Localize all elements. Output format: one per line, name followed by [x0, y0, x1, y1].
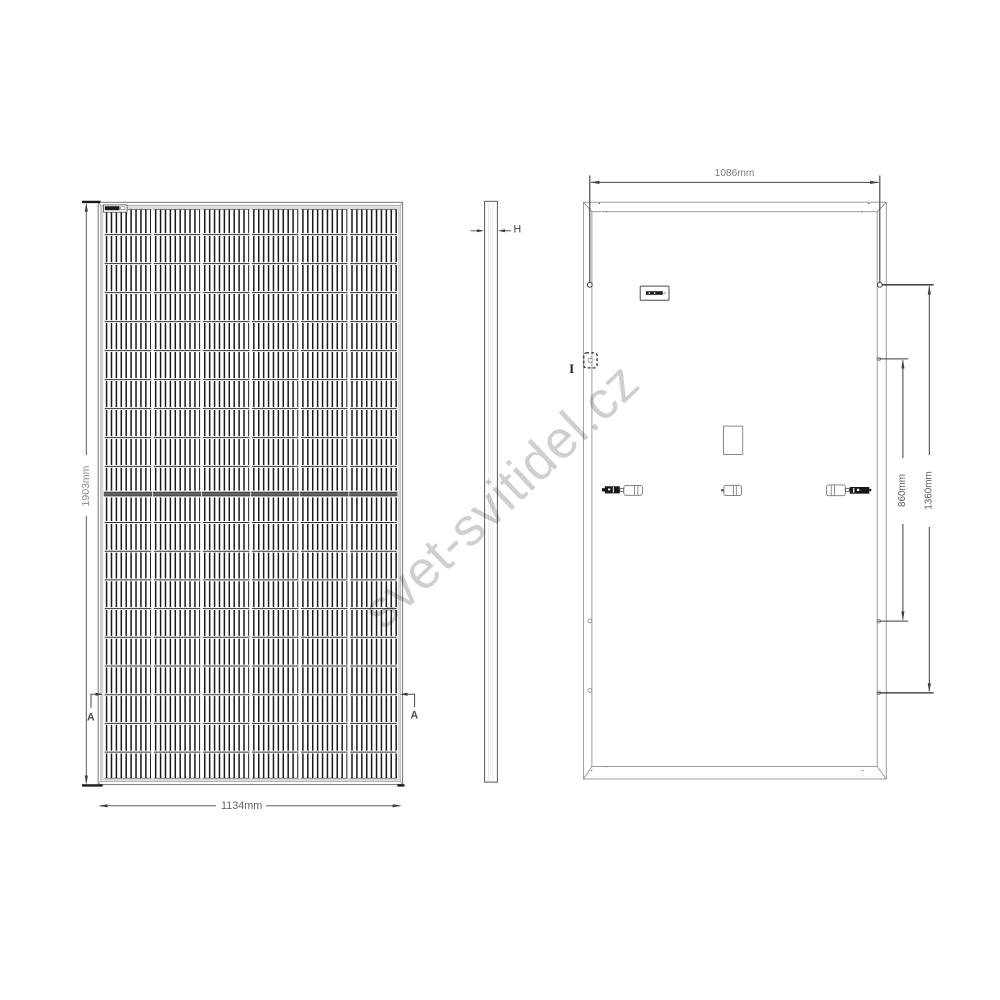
- svg-text:1086mm: 1086mm: [715, 168, 755, 179]
- svg-text:A: A: [87, 711, 95, 723]
- svg-text:1903mm: 1903mm: [80, 465, 92, 506]
- svg-text:1360mm: 1360mm: [924, 471, 935, 509]
- svg-text:1134mm: 1134mm: [221, 800, 262, 812]
- svg-text:H: H: [513, 223, 521, 235]
- svg-text:I: I: [569, 361, 574, 376]
- svg-text:860mm: 860mm: [897, 474, 908, 507]
- svg-text:A: A: [410, 710, 418, 722]
